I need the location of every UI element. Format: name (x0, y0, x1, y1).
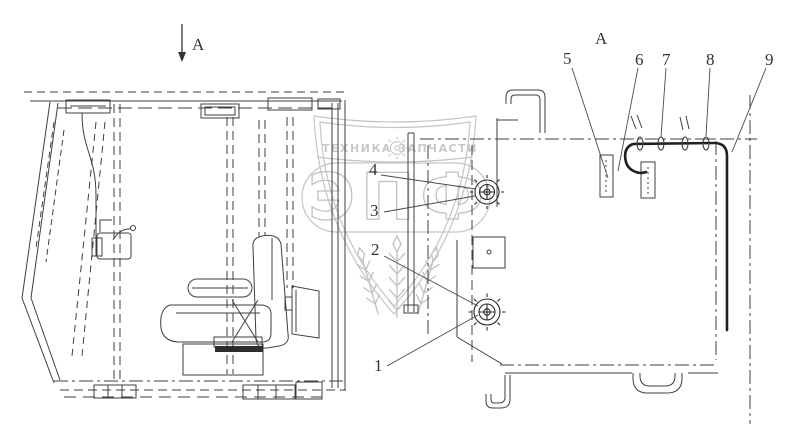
hook-handle-top (506, 90, 545, 133)
cab-heater-pipe-diagram: ТЕХНИКА ЗАПЧАСТИ ЭПФ (0, 0, 793, 424)
top-view-title: A (595, 29, 608, 48)
callout-4: 4 (369, 160, 378, 179)
operator-seat (161, 235, 319, 375)
left-notch (473, 237, 505, 268)
control-console (92, 220, 136, 259)
callout-5: 5 (563, 49, 572, 68)
wheat-ears-icon (352, 236, 443, 318)
leader-6 (618, 68, 638, 171)
schematic-page: ТЕХНИКА ЗАПЧАСТИ ЭПФ (0, 0, 793, 424)
leader-2 (384, 256, 478, 306)
callout-3: 3 (370, 201, 379, 220)
hook-handle-bottom (486, 375, 510, 408)
cab-side-view (22, 92, 346, 399)
cab-top-view (420, 90, 757, 424)
fastener-bottom (469, 294, 506, 331)
callout-7: 7 (662, 50, 671, 69)
callout-6: 6 (635, 50, 644, 69)
roof-lines (24, 92, 344, 118)
leader-5 (572, 68, 608, 178)
arrow-head (178, 52, 186, 62)
break-marks (631, 115, 689, 130)
section-arrow-label: A (192, 35, 205, 54)
watermark-tagline-left: ТЕХНИКА (322, 142, 392, 155)
leader-1 (387, 315, 478, 366)
fastener-top (470, 175, 504, 209)
pipe-bracket (600, 155, 655, 198)
pillar-lines (114, 104, 293, 380)
callout-2: 2 (371, 240, 380, 259)
roof-handle (633, 373, 682, 393)
windshield-lines (22, 102, 64, 383)
callout-9: 9 (765, 50, 774, 69)
floor-lines (54, 381, 346, 399)
watermark-logo: ТЕХНИКА ЗАПЧАСТИ ЭПФ (302, 116, 490, 318)
section-arrow-a: A (178, 24, 205, 62)
leader-7 (661, 68, 666, 137)
callout-8: 8 (706, 50, 715, 69)
watermark-tagline-right: ЗАПЧАСТИ (398, 142, 478, 155)
leader-8 (706, 68, 710, 136)
callout-1: 1 (374, 356, 383, 375)
heater-pipe (625, 143, 727, 330)
